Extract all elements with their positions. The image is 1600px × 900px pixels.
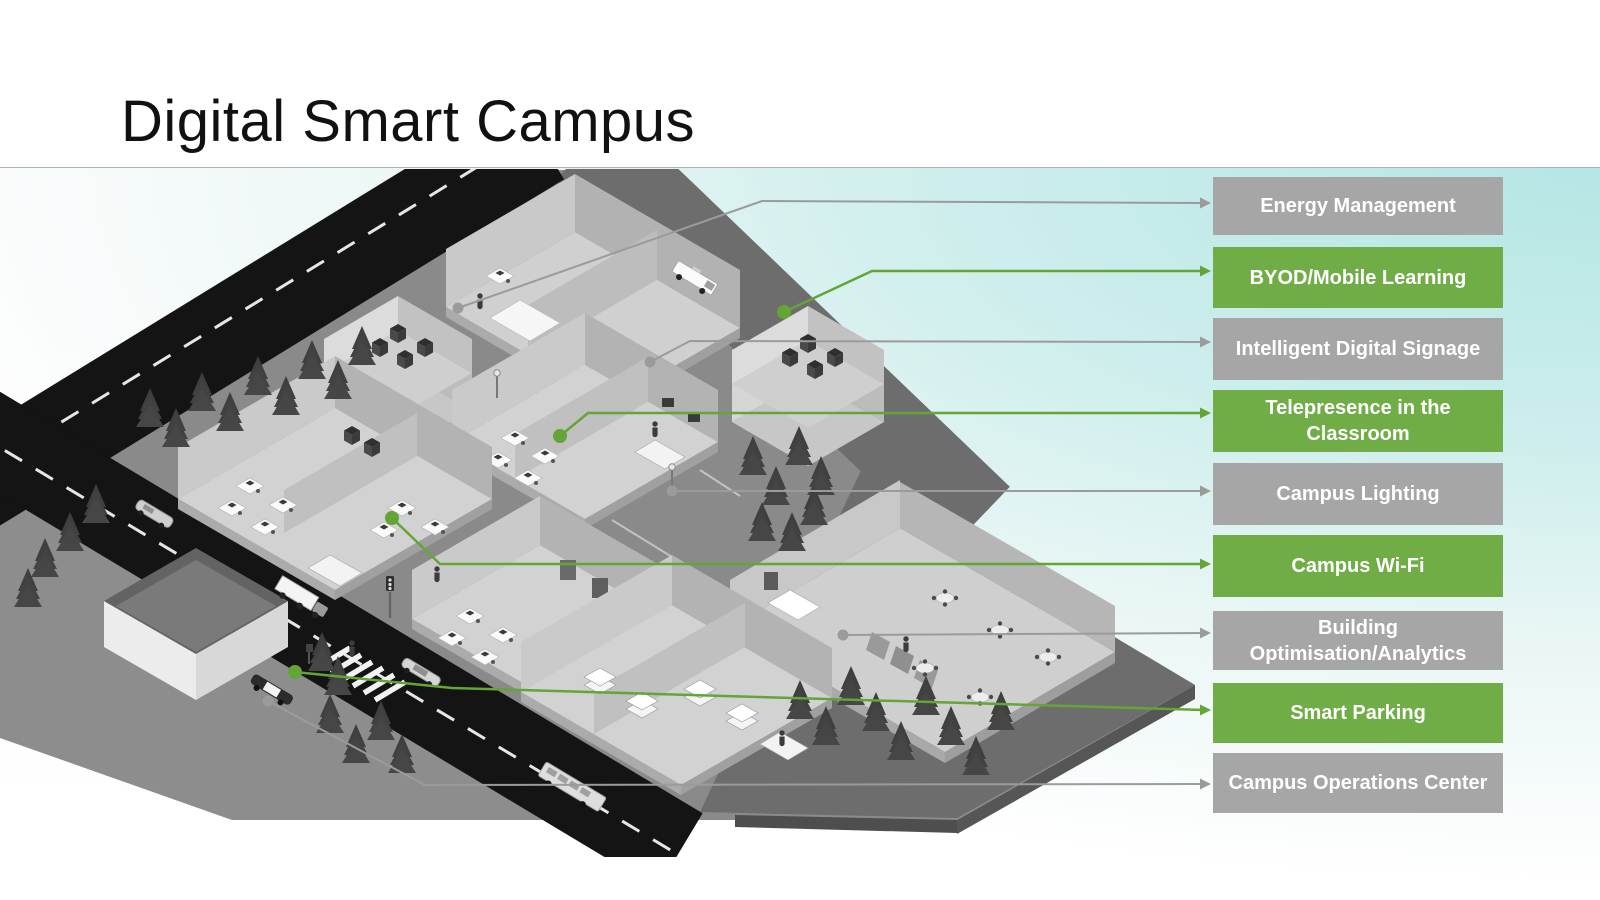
pedestrian [434, 566, 439, 582]
slide: Digital Smart Campus Energy Management B… [0, 0, 1600, 900]
leader-line-byod-mobile-learning [784, 271, 1204, 312]
endpoint-dot-campus-operations [263, 696, 274, 707]
endpoint-dot-smart-parking [288, 665, 302, 679]
slide-title: Digital Smart Campus [121, 88, 695, 155]
endpoint-dot-intelligent-digital-signage [645, 357, 656, 368]
endpoint-dot-telepresence-classroom [553, 429, 567, 443]
endpoint-dot-building-optimisation [838, 630, 849, 641]
endpoint-dot-energy-management [453, 303, 464, 314]
endpoint-dot-campus-wifi [385, 511, 399, 525]
title-divider [0, 167, 1600, 168]
endpoint-dot-campus-lighting [667, 486, 678, 497]
pedestrian [349, 640, 354, 656]
endpoint-dot-byod-mobile-learning [777, 305, 791, 319]
